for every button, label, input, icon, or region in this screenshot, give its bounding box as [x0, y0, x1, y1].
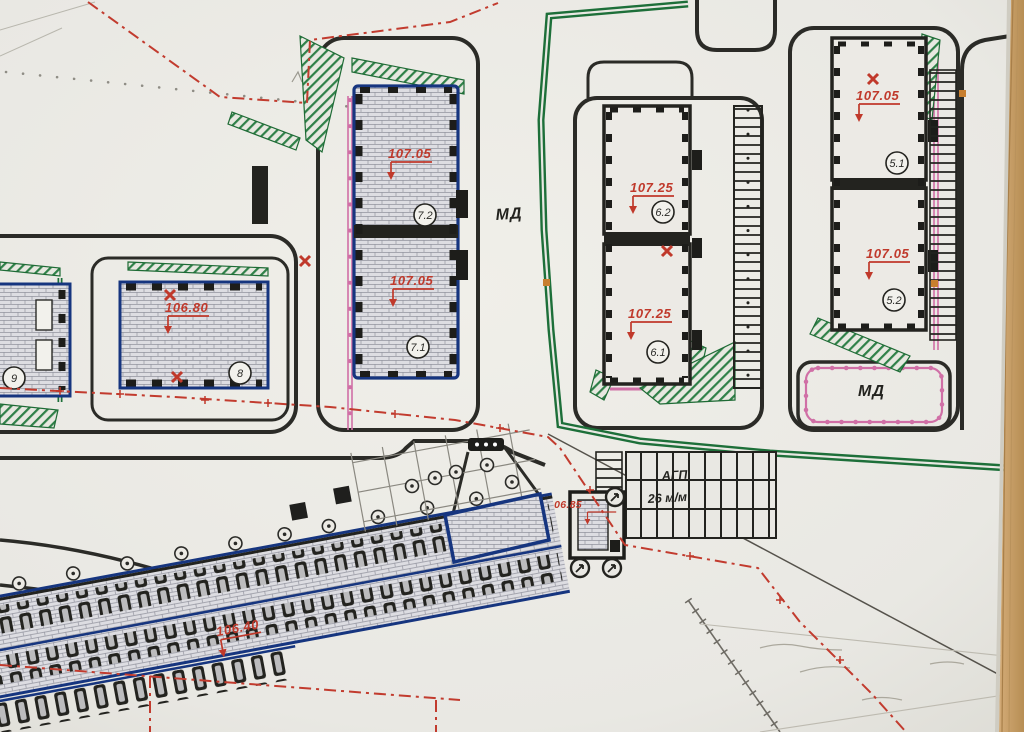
building-5-lower-unit: 5.2 [886, 295, 901, 307]
building-6-upper-unit-badge: 6.2 [652, 201, 674, 223]
manhole-symbol [603, 559, 621, 577]
site-plan-photo: 9 106.80 8 107.05 107.05 7.2 7.1 107.25 … [0, 0, 1024, 732]
building-7-lower-unit-badge: 7.1 [407, 336, 429, 358]
manhole-symbol [606, 488, 624, 506]
building-7-lower-elevation: 107.05 [390, 273, 434, 288]
building-9-unit: 9 [11, 373, 17, 385]
building-8-unit-badge: 8 [229, 362, 251, 384]
building-5: 107.05 107.05 5.1 5.2 [832, 38, 938, 330]
building-7-lower-unit: 7.1 [410, 342, 425, 354]
building-5-upper-elevation: 107.05 [856, 88, 900, 103]
building-8: 106.80 8 [120, 282, 268, 388]
building-5-upper-unit-badge: 5.1 [886, 152, 908, 174]
building-9: 9 [0, 284, 70, 396]
building-6-upper-elevation: 107.25 [630, 180, 674, 195]
site-plan-drawing: 9 106.80 8 107.05 107.05 7.2 7.1 107.25 … [0, 0, 1024, 732]
block-label-md: МД [858, 383, 885, 400]
guest-parking-title: АГП [660, 468, 688, 483]
building-6-lower-unit-badge: 6.1 [647, 341, 669, 363]
manhole-symbol [571, 559, 589, 577]
building-8-elevation: 106.80 [165, 300, 209, 315]
building-6: 107.25 107.25 6.2 6.1 [604, 106, 702, 384]
building-6-upper-unit: 6.2 [655, 207, 670, 219]
street-label-md: МД [495, 205, 523, 224]
dumpster-pad [468, 438, 504, 451]
building-5-upper-unit: 5.1 [889, 158, 904, 170]
building-9-unit-badge: 9 [3, 367, 25, 389]
building-5-lower-unit-badge: 5.2 [883, 289, 905, 311]
guest-parking-capacity: 26 м/м [646, 490, 687, 506]
building-8-unit: 8 [237, 368, 244, 380]
building-5-lower-elevation: 107.05 [866, 246, 910, 261]
building-7-upper-elevation: 107.05 [388, 146, 432, 161]
building-7-upper-unit-badge: 7.2 [414, 204, 436, 226]
building-7-upper-unit: 7.2 [417, 210, 432, 222]
building-6-lower-unit: 6.1 [650, 347, 665, 359]
building-6-lower-elevation: 107.25 [628, 306, 672, 321]
